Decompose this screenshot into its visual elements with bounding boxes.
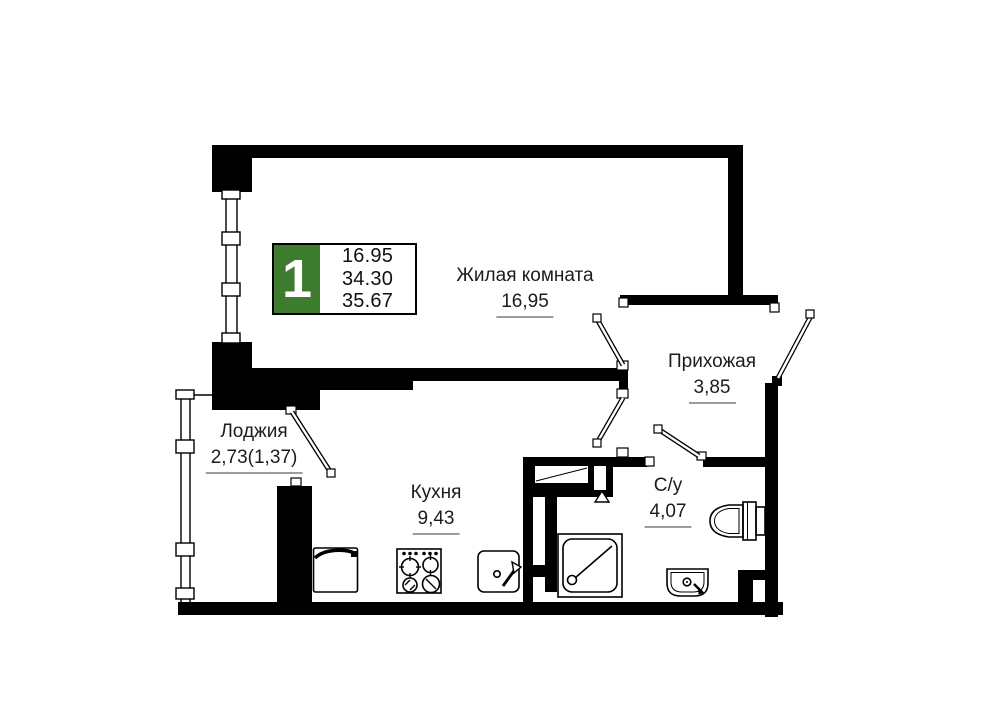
stove-icon <box>397 549 441 593</box>
room-label-loggia: Лоджия 2,73(1,37) <box>206 421 303 474</box>
room-area: 2,73(1,37) <box>206 447 303 474</box>
door-bathroom <box>654 425 699 456</box>
room-area: 4,07 <box>645 501 692 528</box>
refrigerator-icon <box>314 548 358 592</box>
area-value-living: 16.95 <box>342 245 393 268</box>
shower-icon <box>558 534 622 597</box>
room-name: Кухня <box>411 482 462 504</box>
door-entrance <box>778 310 814 378</box>
living-room-window <box>222 190 240 343</box>
room-count-badge: 1 16.95 34.30 35.67 <box>272 243 417 315</box>
room-label-bathroom: С/у 4,07 <box>645 475 692 528</box>
room-area: 3,85 <box>689 377 736 404</box>
room-name: С/у <box>645 475 692 497</box>
rooms-count: 1 <box>274 245 320 313</box>
room-area: 9,43 <box>413 508 460 535</box>
room-name: Жилая комната <box>456 265 593 287</box>
door-living-room <box>593 314 623 365</box>
room-label-kitchen: Кухня 9,43 <box>411 482 462 535</box>
door-kitchen <box>593 398 623 447</box>
room-label-hallway: Прихожая 3,85 <box>668 351 756 404</box>
floor-plan: Жилая комната 16,95 Прихожая 3,85 Лоджия… <box>0 0 1000 707</box>
room-name: Лоджия <box>206 421 303 443</box>
fixtures <box>314 502 766 597</box>
toilet-icon <box>710 502 765 540</box>
bathroom-sink-icon <box>667 569 708 596</box>
kitchen-sink-icon <box>478 551 521 592</box>
room-name: Прихожая <box>668 351 756 373</box>
room-label-living: Жилая комната 16,95 <box>456 265 593 318</box>
floor-plan-drawing <box>0 0 1000 707</box>
area-value-total: 35.67 <box>342 290 393 313</box>
area-value-apartment: 34.30 <box>342 268 393 291</box>
room-area: 16,95 <box>496 291 554 318</box>
area-summary: 16.95 34.30 35.67 <box>320 245 415 313</box>
